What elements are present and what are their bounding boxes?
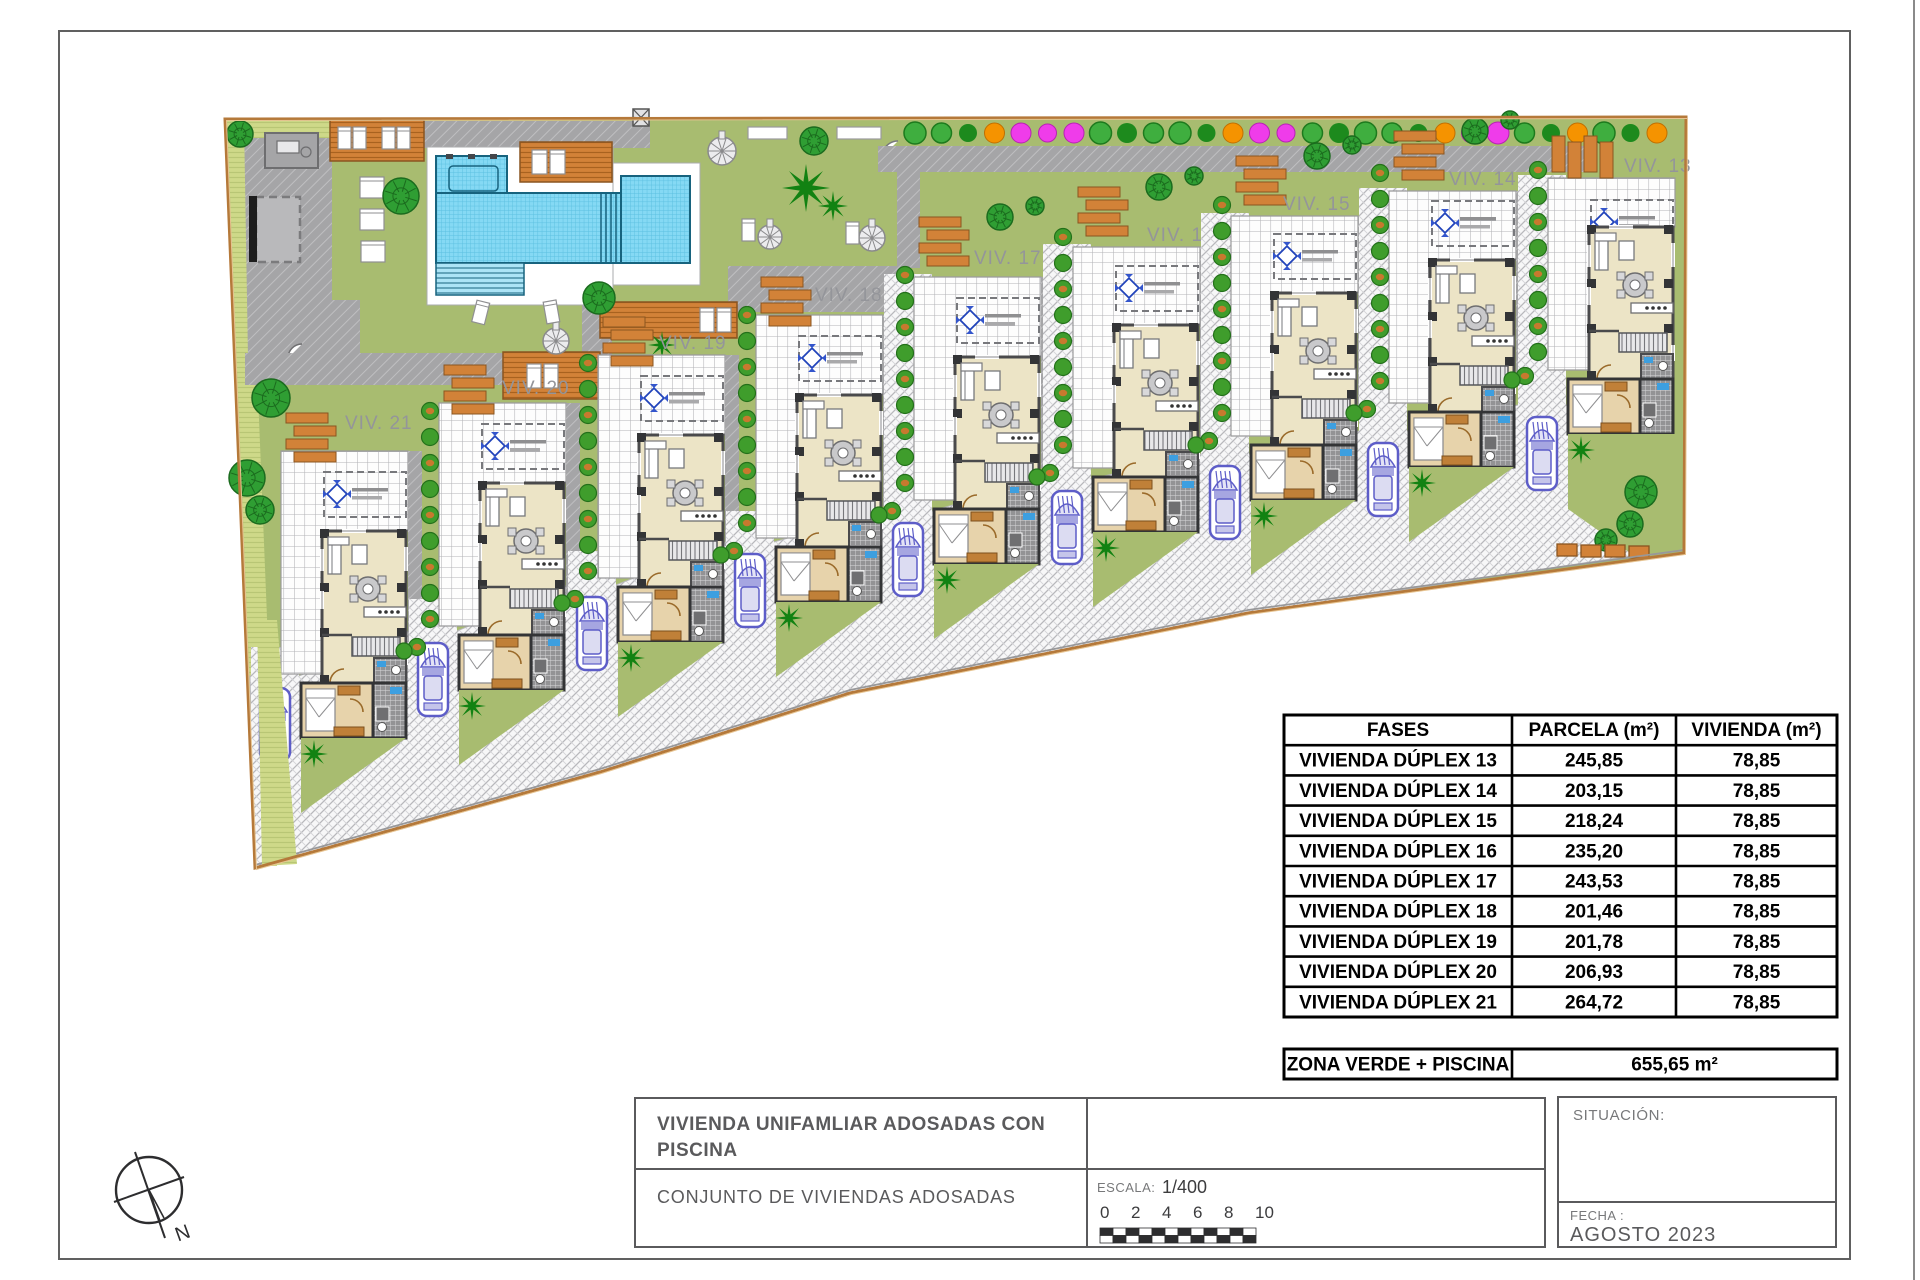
svg-text:264,72: 264,72 (1565, 992, 1623, 1013)
svg-text:203,15: 203,15 (1565, 781, 1624, 802)
svg-text:FECHA :: FECHA : (1570, 1208, 1624, 1223)
svg-text:VIVIENDA DÚPLEX 16: VIVIENDA DÚPLEX 16 (1299, 840, 1497, 862)
svg-text:VIV. 18: VIV. 18 (815, 285, 883, 306)
svg-text:78,85: 78,85 (1733, 932, 1781, 953)
svg-text:218,24: 218,24 (1565, 811, 1624, 832)
svg-text:2: 2 (1131, 1203, 1140, 1222)
svg-text:VIV. 20: VIV. 20 (502, 378, 570, 399)
svg-text:201,78: 201,78 (1565, 932, 1623, 953)
svg-text:206,93: 206,93 (1565, 962, 1623, 983)
svg-text:CONJUNTO DE VIVIENDAS ADOSADAS: CONJUNTO DE VIVIENDAS ADOSADAS (657, 1187, 1016, 1207)
svg-text:78,85: 78,85 (1733, 902, 1781, 923)
svg-text:655,65 m²: 655,65 m² (1631, 1055, 1718, 1076)
svg-text:78,85: 78,85 (1733, 872, 1781, 893)
svg-text:VIVIENDA DÚPLEX 17: VIVIENDA DÚPLEX 17 (1299, 871, 1497, 893)
svg-text:VIVIENDA DÚPLEX 18: VIVIENDA DÚPLEX 18 (1299, 901, 1497, 923)
svg-text:201,46: 201,46 (1565, 902, 1623, 923)
svg-text:ZONA VERDE + PISCINA: ZONA VERDE + PISCINA (1287, 1055, 1510, 1076)
svg-text:VIVIENDA DÚPLEX 20: VIVIENDA DÚPLEX 20 (1299, 961, 1497, 983)
svg-text:6: 6 (1193, 1203, 1202, 1222)
svg-text:PARCELA (m²): PARCELA (m²) (1529, 720, 1660, 741)
svg-text:ESCALA:: ESCALA: (1097, 1180, 1155, 1195)
svg-text:78,85: 78,85 (1733, 751, 1781, 772)
svg-text:FASES: FASES (1367, 720, 1429, 741)
svg-text:78,85: 78,85 (1733, 962, 1781, 983)
svg-text:VIV. 14: VIV. 14 (1449, 169, 1517, 190)
svg-text:243,53: 243,53 (1565, 872, 1623, 893)
svg-text:VIV. 21: VIV. 21 (345, 413, 413, 434)
svg-text:VIVIENDA DÚPLEX 14: VIVIENDA DÚPLEX 14 (1299, 780, 1497, 802)
svg-text:VIVIENDA (m²): VIVIENDA (m²) (1691, 720, 1821, 741)
svg-text:245,85: 245,85 (1565, 751, 1624, 772)
svg-text:VIV. 15: VIV. 15 (1283, 194, 1351, 215)
svg-text:PISCINA: PISCINA (657, 1140, 738, 1161)
svg-text:1/400: 1/400 (1162, 1177, 1207, 1197)
svg-text:10: 10 (1255, 1203, 1274, 1222)
svg-text:4: 4 (1162, 1203, 1171, 1222)
svg-text:8: 8 (1224, 1203, 1233, 1222)
svg-text:VIV. 17: VIV. 17 (974, 248, 1042, 269)
svg-text:78,85: 78,85 (1733, 992, 1781, 1013)
svg-text:78,85: 78,85 (1733, 811, 1781, 832)
svg-text:VIV. 13: VIV. 13 (1624, 156, 1692, 177)
svg-text:VIVIENDA DÚPLEX 19: VIVIENDA DÚPLEX 19 (1299, 931, 1497, 953)
svg-text:VIVIENDA DÚPLEX 15: VIVIENDA DÚPLEX 15 (1299, 810, 1497, 832)
svg-text:78,85: 78,85 (1733, 781, 1781, 802)
svg-text:VIVIENDA UNIFAMLIAR ADOSADAS C: VIVIENDA UNIFAMLIAR ADOSADAS CON (657, 1114, 1045, 1135)
svg-text:AGOSTO 2023: AGOSTO 2023 (1570, 1224, 1716, 1246)
svg-text:VIVIENDA DÚPLEX 13: VIVIENDA DÚPLEX 13 (1299, 750, 1497, 772)
svg-text:VIVIENDA DÚPLEX 21: VIVIENDA DÚPLEX 21 (1299, 991, 1497, 1013)
svg-text:VIV. 19: VIV. 19 (659, 333, 727, 354)
svg-text:SITUACIÓN:: SITUACIÓN: (1573, 1107, 1665, 1124)
svg-text:78,85: 78,85 (1733, 841, 1781, 862)
svg-text:0: 0 (1100, 1203, 1109, 1222)
svg-text:235,20: 235,20 (1565, 841, 1623, 862)
